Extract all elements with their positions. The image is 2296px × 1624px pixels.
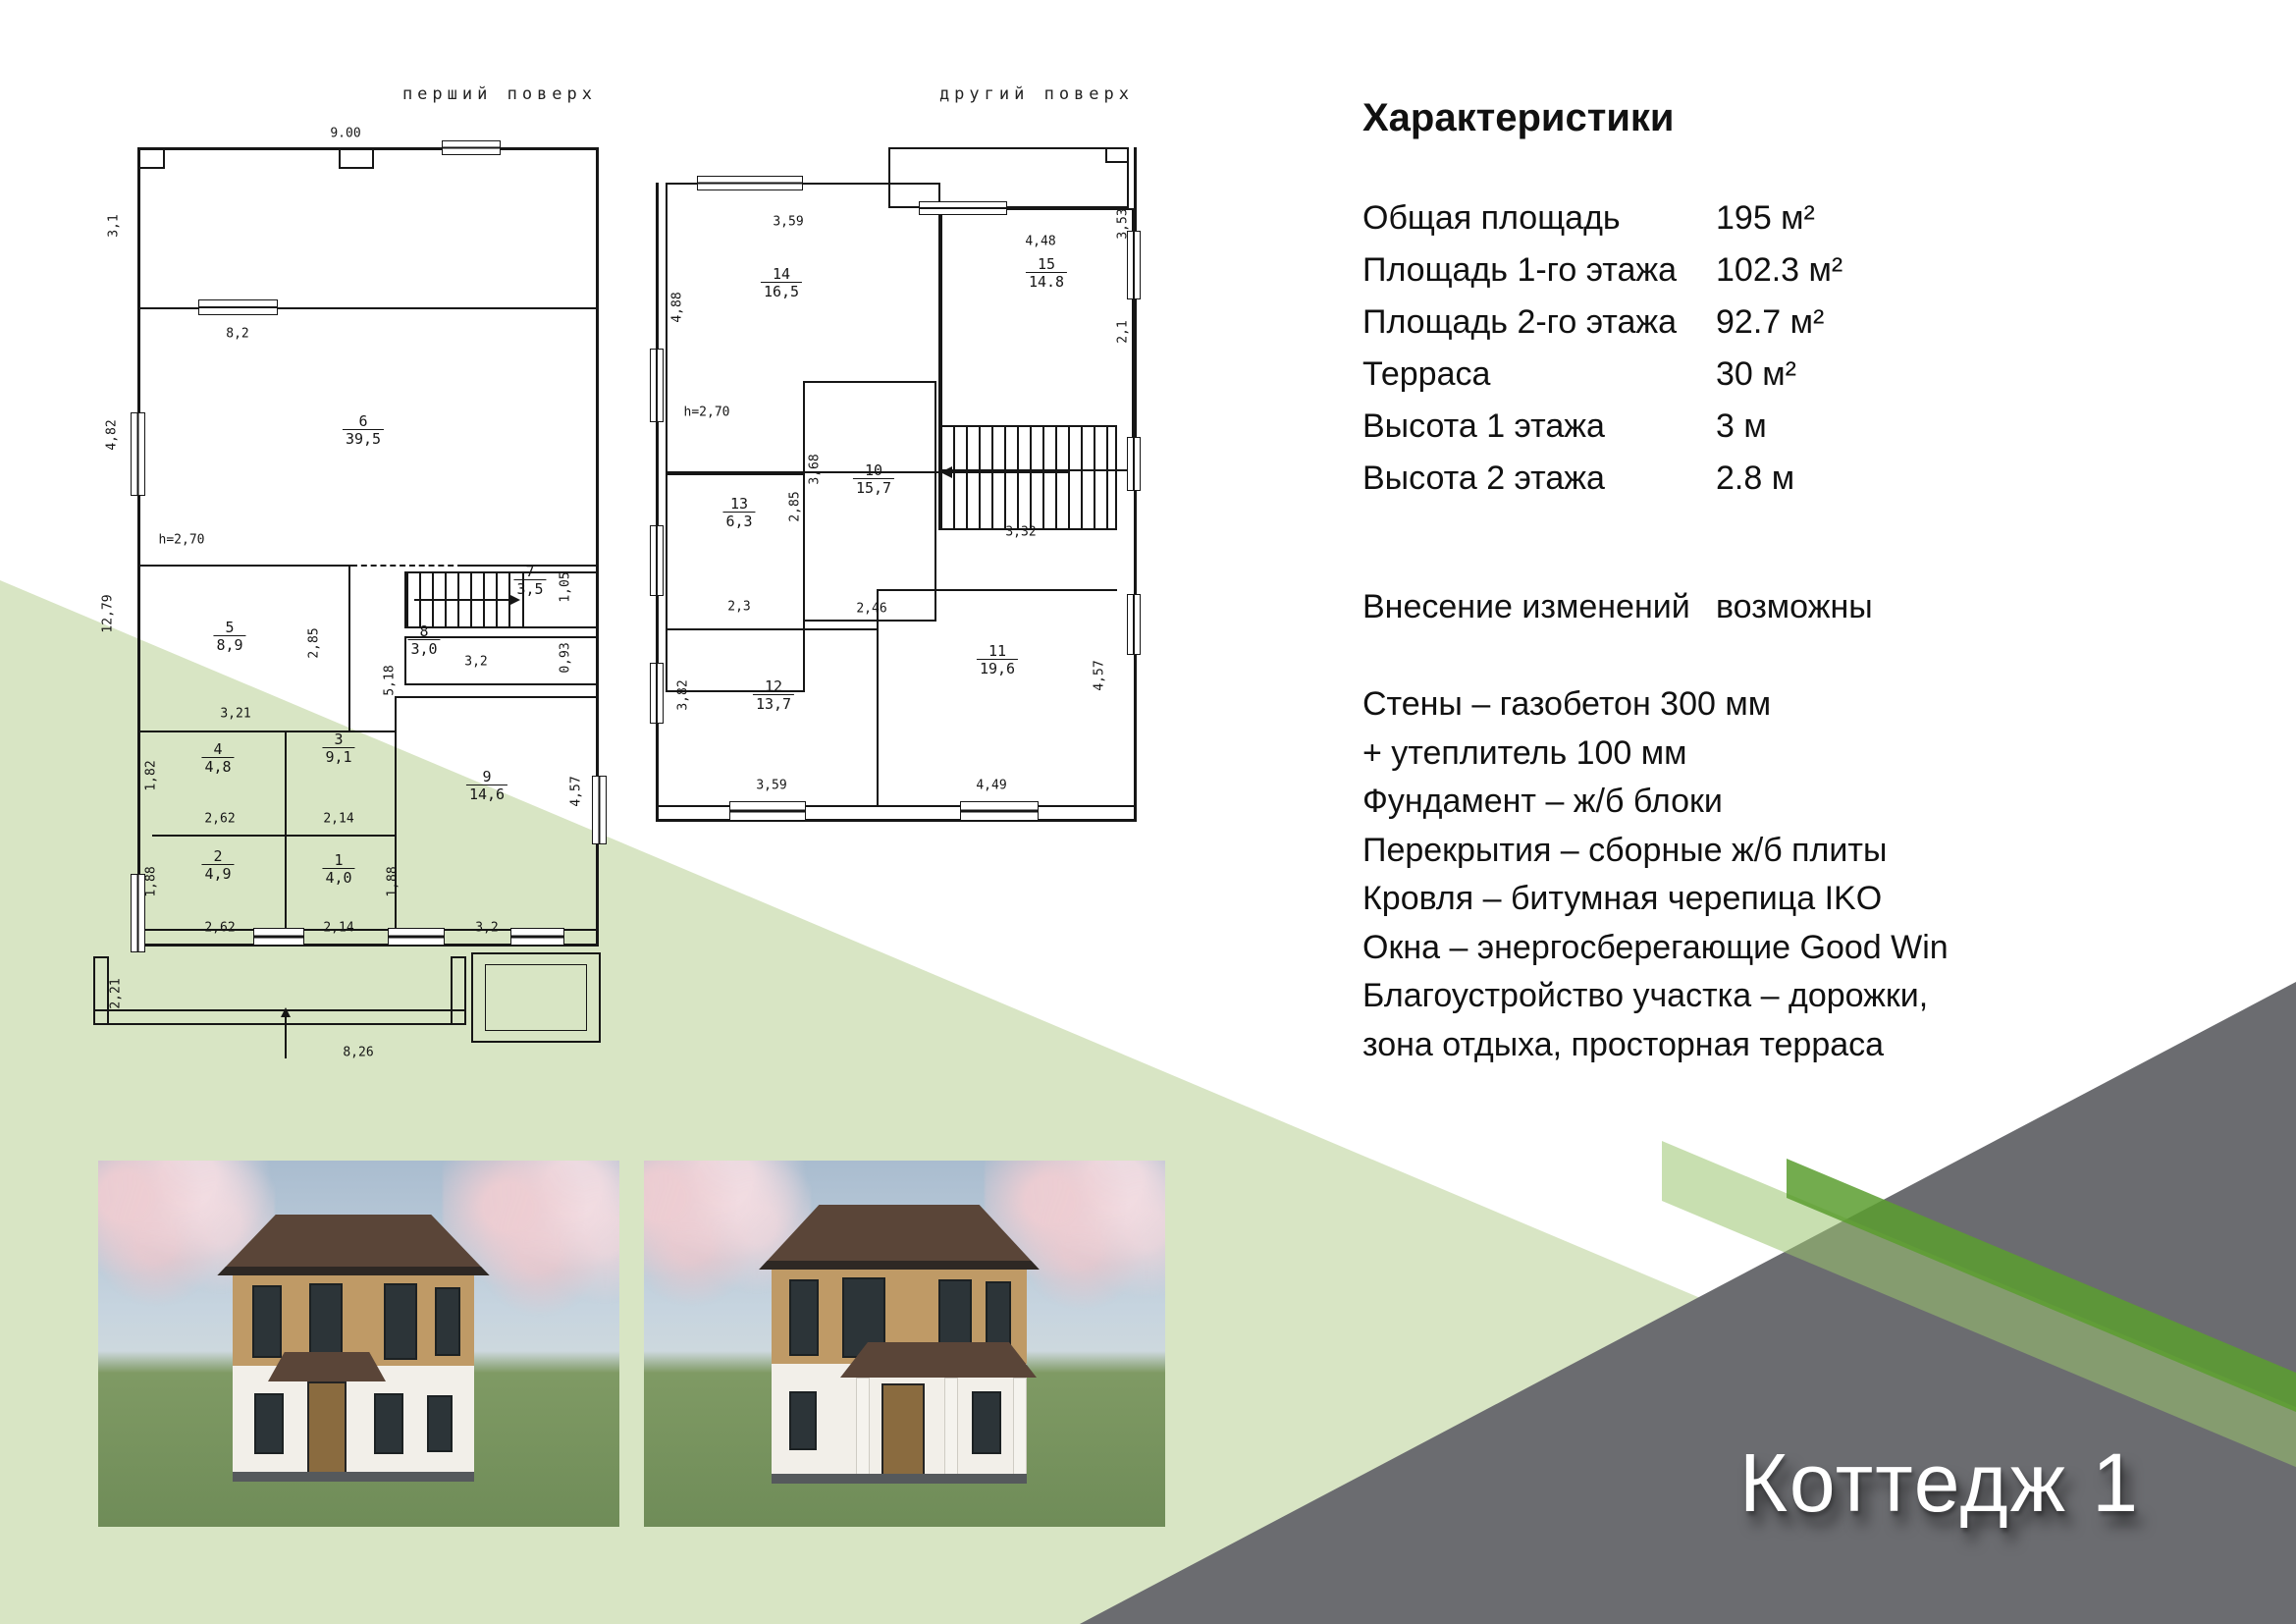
room-label-14: 1416,5 [761, 266, 802, 299]
note-label: Внесение изменений [1362, 588, 1690, 625]
dimension-label: 2,3 [727, 600, 750, 615]
dimension-label: 3,68 [808, 454, 823, 484]
characteristics-title: Характеристики [1362, 94, 2089, 141]
room-label-8: 83,0 [407, 623, 440, 657]
dimension-label: 3,59 [773, 215, 803, 230]
detail-line: + утеплитель 100 мм [1362, 730, 2089, 779]
dimension-label: 4,82 [105, 419, 120, 450]
details-list: Стены – газобетон 300 мм+ утеплитель 100… [1362, 680, 2089, 1069]
room-label-15: 1514.8 [1026, 256, 1067, 290]
note-value: возможны [1716, 585, 1873, 628]
dimension-label: 2,21 [109, 978, 124, 1008]
detail-line: Благоустройство участка – дорожки, [1362, 972, 2089, 1021]
dimension-label: 0,93 [559, 642, 573, 673]
spec-label: Высота 1 этажа [1362, 407, 1605, 445]
spec-value: 2.8 м [1716, 457, 1794, 500]
spec-label: Высота 2 этажа [1362, 460, 1605, 497]
dimension-label: 1,88 [144, 866, 159, 896]
dimension-label: 3,32 [1005, 525, 1036, 540]
detail-line: Перекрытия – сборные ж/б плиты [1362, 827, 2089, 876]
first-floor-plan: 14,024,939,144,858,9639,573,583,0914,69.… [137, 147, 599, 1060]
spec-value: 195 м² [1716, 196, 1815, 240]
dimension-label: 4,57 [569, 776, 584, 806]
characteristics-panel: Характеристики Общая площадь195 м²Площад… [1362, 94, 2089, 1069]
first-floor-title: перший поверх [381, 84, 597, 104]
room-label-1: 14,0 [322, 852, 354, 886]
dimension-label: 3,2 [475, 921, 498, 936]
room-label-11: 1119,6 [977, 643, 1018, 677]
brochure-page: { "page": { "colors": { "pale_green": "#… [0, 0, 2296, 1624]
cottage-title: Коттедж 1 [1739, 1435, 2140, 1531]
dimension-label: 2,62 [204, 921, 235, 936]
dimension-label: 3,2 [464, 655, 487, 670]
spec-row: Терраса30 м² [1362, 352, 2089, 405]
dimension-label: 4,88 [670, 292, 685, 322]
dimension-label: 8,26 [343, 1046, 373, 1060]
spec-row: Общая площадь195 м² [1362, 196, 2089, 248]
spec-label: Терраса [1362, 355, 1490, 393]
spec-value: 3 м [1716, 405, 1767, 448]
dimension-label: 2,14 [323, 812, 353, 827]
dimension-label: 9.00 [330, 127, 360, 141]
dimension-label: 2,1 [1116, 320, 1131, 343]
house-render-photo-1 [98, 1161, 619, 1527]
spec-label: Общая площадь [1362, 199, 1621, 237]
spec-label: Площадь 1-го этажа [1362, 251, 1677, 289]
dimension-label: 3,1 [107, 214, 122, 237]
room-label-7: 73,5 [513, 564, 546, 597]
note-row: Внесение изменений возможны [1362, 585, 2089, 637]
dimension-label: 2,62 [204, 812, 235, 827]
dimension-label: 12,79 [101, 594, 116, 632]
detail-line: Кровля – битумная черепица IKO [1362, 875, 2089, 924]
dimension-label: 4,57 [1093, 660, 1107, 690]
room-label-2: 24,9 [201, 848, 234, 882]
detail-line: зона отдыха, просторная терраса [1362, 1021, 2089, 1070]
spec-list: Общая площадь195 м²Площадь 1-го этажа102… [1362, 196, 2089, 509]
room-label-9: 914,6 [466, 769, 507, 802]
room-label-6: 639,5 [343, 413, 384, 447]
room-label-5: 58,9 [213, 620, 245, 653]
dimension-label: 4,49 [976, 779, 1006, 793]
dimension-label: h=2,70 [159, 533, 205, 548]
dimension-label: 2,14 [323, 921, 353, 936]
room-label-10: 1015,7 [853, 462, 894, 496]
detail-line: Стены – газобетон 300 мм [1362, 680, 2089, 730]
dimension-label: 3,82 [676, 679, 691, 710]
spec-row: Площадь 1-го этажа102.3 м² [1362, 248, 2089, 300]
dimension-label: 2,85 [307, 627, 322, 658]
dimension-label: 8,2 [226, 327, 248, 342]
dimension-label: 3,21 [220, 707, 250, 722]
detail-line: Окна – энергосберегающие Good Win [1362, 924, 2089, 973]
spec-value: 102.3 м² [1716, 248, 1842, 292]
dimension-label: 1,88 [386, 866, 400, 896]
dimension-label: 2,85 [788, 491, 803, 521]
room-label-13: 136,3 [722, 496, 755, 529]
spec-value: 92.7 м² [1716, 300, 1824, 344]
room-label-3: 39,1 [322, 731, 354, 765]
second-floor-plan: 1015,71119,61213,7136,31416,51514.83,594… [656, 147, 1137, 825]
spec-value: 30 м² [1716, 352, 1796, 396]
dimension-label: 1,82 [144, 760, 159, 790]
spec-row: Площадь 2-го этажа92.7 м² [1362, 300, 2089, 352]
spec-label: Площадь 2-го этажа [1362, 303, 1677, 341]
room-label-4: 44,8 [201, 741, 234, 775]
spec-row: Высота 2 этажа2.8 м [1362, 457, 2089, 509]
dimension-label: 2,46 [856, 602, 886, 617]
spec-row: Высота 1 этажа3 м [1362, 405, 2089, 457]
dimension-label: 5,18 [383, 665, 398, 695]
dimension-label: 4,48 [1025, 235, 1055, 249]
detail-line: Фундамент – ж/б блоки [1362, 778, 2089, 827]
room-label-12: 1213,7 [753, 678, 794, 712]
dimension-label: h=2,70 [684, 406, 730, 420]
second-floor-title: другий поверх [918, 84, 1134, 104]
house-render-photo-2 [644, 1161, 1165, 1527]
dimension-label: 3,59 [756, 779, 786, 793]
dimension-label: 1,05 [559, 571, 573, 602]
dimension-label: 3,53 [1116, 208, 1131, 239]
